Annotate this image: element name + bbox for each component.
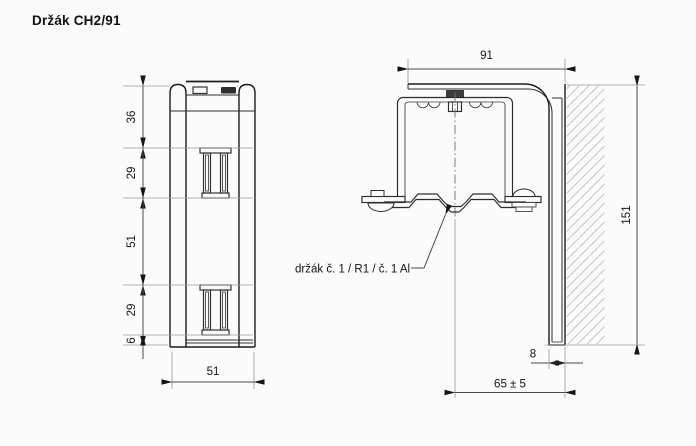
right-fastener-washer xyxy=(512,203,536,208)
side-height-dimension: 151 xyxy=(621,86,637,344)
dim-top-91: 91 xyxy=(480,50,493,62)
bracket-arm-inner xyxy=(408,89,552,342)
part-callout: držák č. 1 / R1 / č. 1 Al xyxy=(295,215,446,276)
left-fastener-nut xyxy=(371,191,384,197)
drawing-canvas: 36 29 51 29 6 51 xyxy=(0,0,696,446)
front-top-tab-left xyxy=(193,87,207,94)
front-height-dimension-chain: 36 29 51 29 6 xyxy=(126,86,143,359)
front-slot-upper xyxy=(200,148,231,198)
dim-height-29-lower: 29 xyxy=(126,304,138,317)
dim-thickness-8: 8 xyxy=(530,349,536,361)
clamp-insert xyxy=(362,189,541,212)
front-view xyxy=(170,82,255,348)
dim-height-36: 36 xyxy=(126,111,138,124)
callout-label: držák č. 1 / R1 / č. 1 Al xyxy=(295,264,410,276)
callout-leader-line xyxy=(411,215,446,269)
front-right-rail xyxy=(239,85,255,348)
channel-hook-right xyxy=(470,102,493,108)
side-extension-lines xyxy=(408,59,645,398)
dim-height-6: 6 xyxy=(126,337,138,343)
side-thickness-dimension: 8 xyxy=(530,349,583,364)
front-slot-lower xyxy=(200,285,231,335)
technical-drawing-page: Držák CH2/91 xyxy=(0,0,696,446)
dim-offset-65: 65 ± 5 xyxy=(494,379,526,391)
side-offset-dimension: 65 ± 5 xyxy=(455,379,565,393)
side-view xyxy=(362,84,605,345)
dim-height-29-upper: 29 xyxy=(126,167,138,180)
wall-hatching xyxy=(567,85,605,344)
right-fastener-head xyxy=(513,189,535,197)
front-left-rail xyxy=(170,85,186,348)
right-fastener-nut xyxy=(516,207,532,212)
bracket-arm-outer xyxy=(408,84,549,345)
dim-height-151: 151 xyxy=(621,205,633,224)
dim-width-51: 51 xyxy=(207,366,220,378)
dim-height-51: 51 xyxy=(126,235,138,248)
front-top-tab-right xyxy=(221,87,236,94)
front-width-dimension: 51 xyxy=(172,366,254,382)
left-fastener-head xyxy=(368,203,394,212)
side-top-dimension: 91 xyxy=(408,50,565,69)
channel-hook-left xyxy=(417,102,440,108)
